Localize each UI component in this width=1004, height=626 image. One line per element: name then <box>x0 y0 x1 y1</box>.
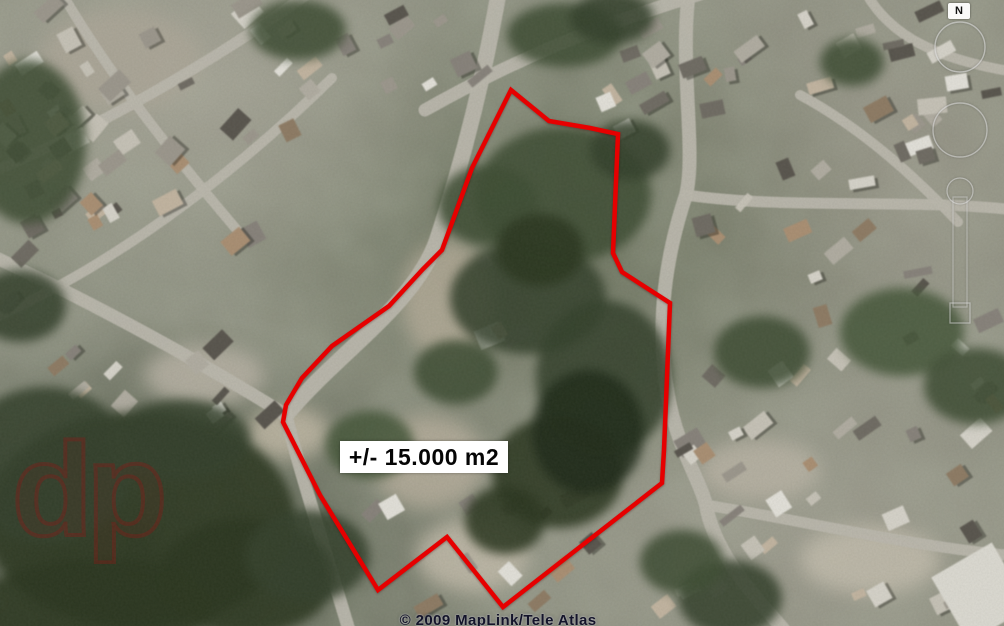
zoom-slider-top-knob[interactable] <box>947 178 973 204</box>
pan-ring[interactable] <box>933 103 987 157</box>
navigation-controls <box>925 0 1000 340</box>
north-indicator[interactable]: N <box>948 3 970 19</box>
compass-ring[interactable] <box>935 22 985 72</box>
map-attribution: © 2009 MapLink/Tele Atlas <box>400 612 597 626</box>
zoom-slider-track[interactable] <box>953 197 967 307</box>
parcel-boundary-polygon <box>283 90 670 607</box>
satellite-view: dp +/- 15.000 m2 N © 2009 MapLink/Tele A… <box>0 0 1004 626</box>
parcel-boundary-overlay <box>0 0 1004 626</box>
area-label: +/- 15.000 m2 <box>340 441 508 473</box>
